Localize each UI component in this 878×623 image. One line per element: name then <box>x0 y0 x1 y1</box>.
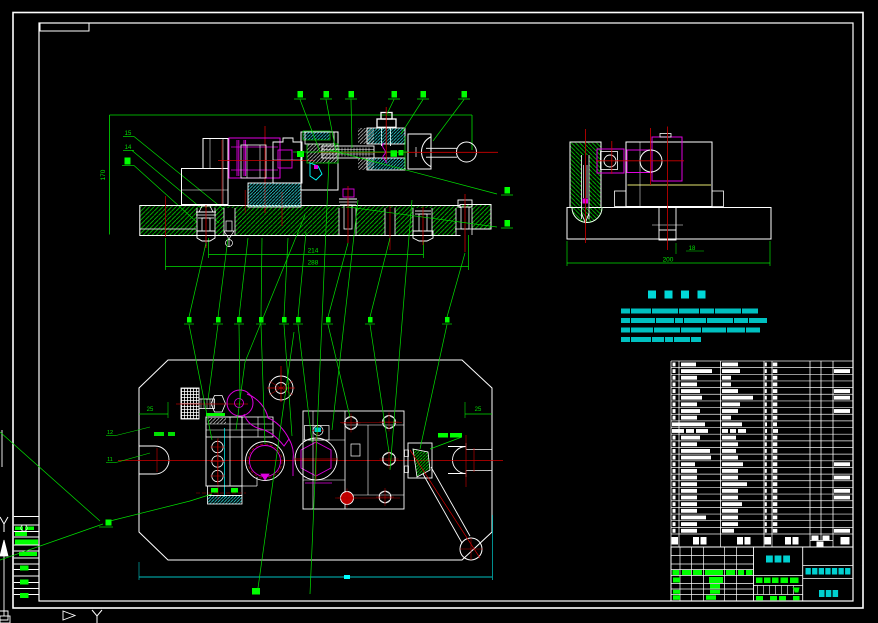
svg-text:14: 14 <box>125 145 132 151</box>
svg-text:11: 11 <box>107 457 113 463</box>
svg-text:15: 15 <box>125 131 132 137</box>
svg-text:200: 200 <box>663 257 674 264</box>
svg-text:288: 288 <box>308 260 319 267</box>
svg-text:170: 170 <box>100 169 107 180</box>
svg-text:25: 25 <box>147 407 154 413</box>
svg-text:214: 214 <box>308 248 319 255</box>
svg-text:25: 25 <box>475 407 482 413</box>
svg-text:12: 12 <box>107 430 113 436</box>
